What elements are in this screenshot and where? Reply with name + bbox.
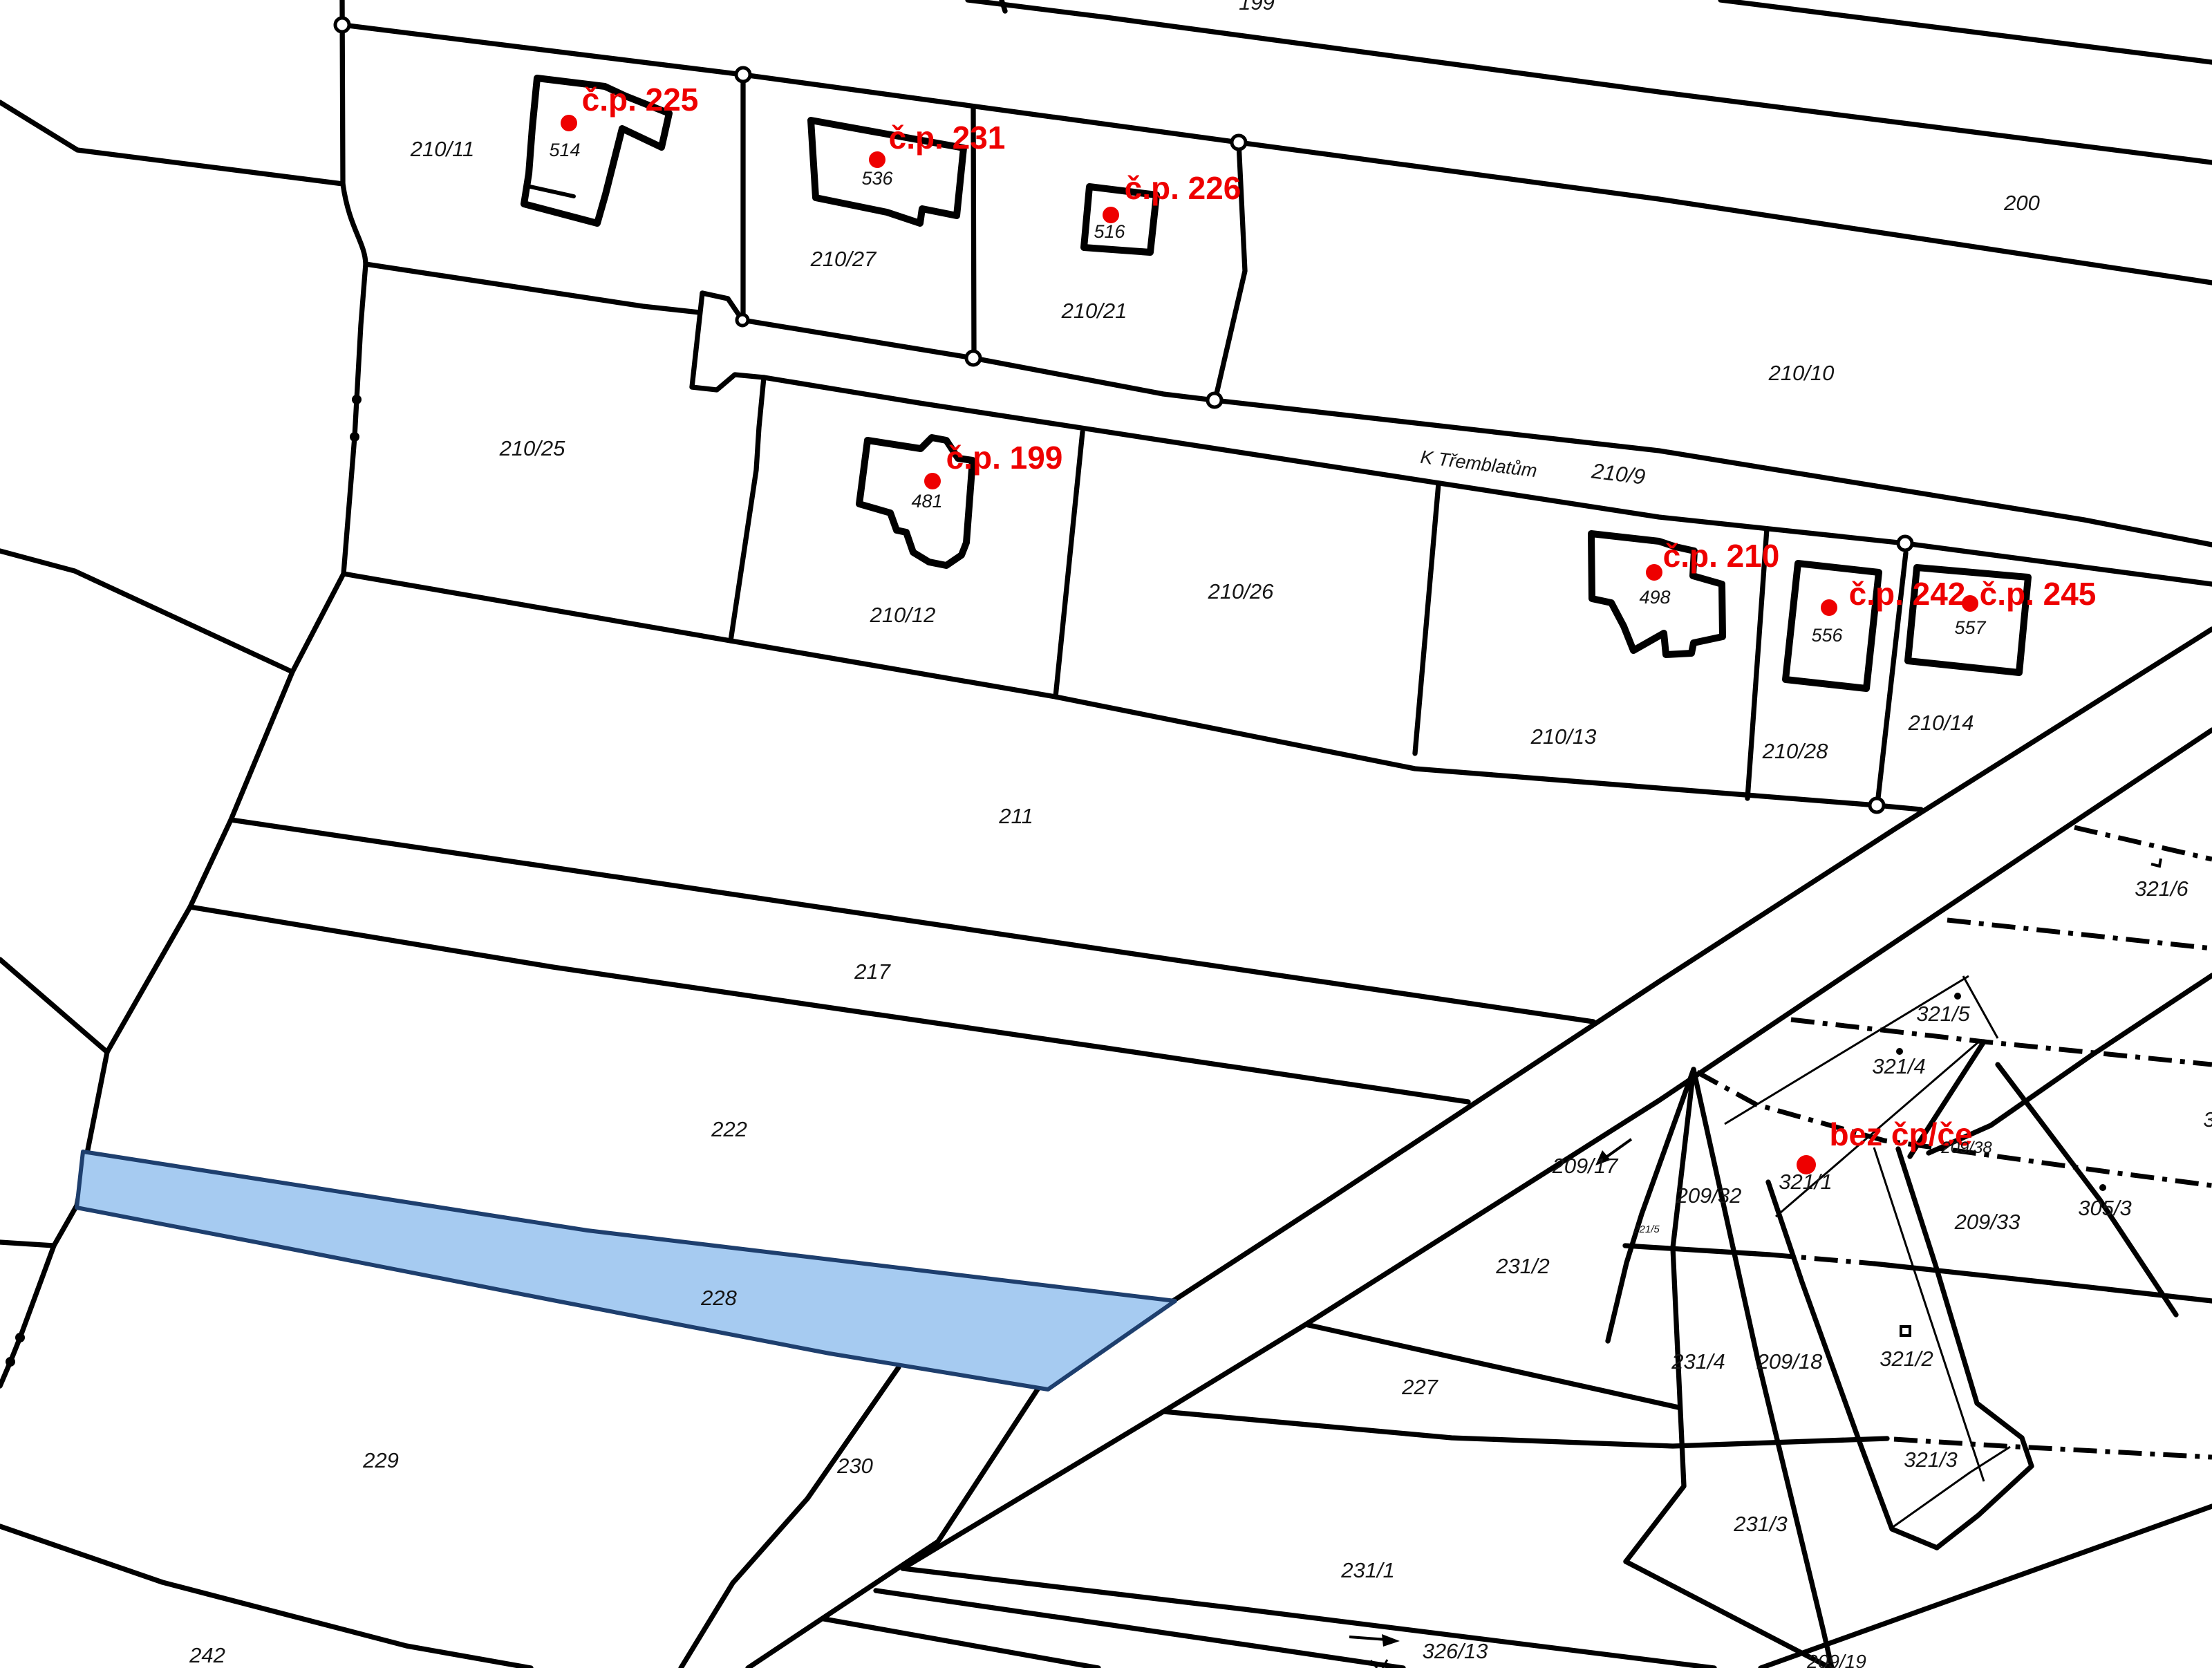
svg-text:514: 514 bbox=[549, 140, 580, 160]
svg-text:556: 556 bbox=[1811, 625, 1843, 646]
svg-text:229: 229 bbox=[362, 1448, 399, 1472]
svg-text:321/6: 321/6 bbox=[2135, 877, 2188, 901]
svg-text:230: 230 bbox=[836, 1454, 873, 1478]
svg-text:209/18: 209/18 bbox=[1756, 1349, 1824, 1374]
svg-text:200: 200 bbox=[2003, 191, 2040, 215]
svg-text:231/1: 231/1 bbox=[1340, 1558, 1395, 1582]
svg-text:242: 242 bbox=[189, 1643, 225, 1667]
svg-text:209/19: 209/19 bbox=[1806, 1651, 1866, 1668]
svg-text:210/26: 210/26 bbox=[1208, 579, 1275, 603]
svg-text:321/1: 321/1 bbox=[1779, 1170, 1833, 1194]
svg-text:3: 3 bbox=[2203, 1107, 2212, 1132]
svg-text:209/17: 209/17 bbox=[1552, 1154, 1620, 1178]
svg-text:210/27: 210/27 bbox=[810, 247, 878, 271]
svg-text:210/25: 210/25 bbox=[499, 436, 566, 460]
svg-text:č.p. 210: č.p. 210 bbox=[1663, 538, 1780, 574]
svg-text:321/4: 321/4 bbox=[1872, 1054, 1926, 1078]
svg-text:211: 211 bbox=[998, 804, 1033, 828]
svg-text:321/5: 321/5 bbox=[1916, 1002, 1970, 1026]
svg-text:305/3: 305/3 bbox=[2078, 1196, 2132, 1220]
svg-text:209/33: 209/33 bbox=[1954, 1210, 2021, 1234]
svg-text:209/32: 209/32 bbox=[1676, 1183, 1742, 1208]
svg-text:221/5: 221/5 bbox=[1633, 1224, 1660, 1235]
svg-text:210/13: 210/13 bbox=[1530, 724, 1597, 749]
svg-text:321/3: 321/3 bbox=[1904, 1447, 1958, 1472]
svg-text:210/28: 210/28 bbox=[1762, 739, 1829, 763]
svg-text:199: 199 bbox=[1239, 0, 1275, 15]
svg-text:326/13: 326/13 bbox=[1423, 1639, 1488, 1663]
svg-text:228: 228 bbox=[700, 1286, 737, 1310]
svg-text:210/12: 210/12 bbox=[870, 603, 936, 627]
svg-text:498: 498 bbox=[1639, 587, 1670, 608]
svg-text:210/21: 210/21 bbox=[1061, 299, 1127, 323]
svg-text:č.p. 226: č.p. 226 bbox=[1125, 170, 1241, 206]
svg-text:557: 557 bbox=[1954, 617, 1986, 638]
svg-text:210/14: 210/14 bbox=[1908, 711, 1974, 735]
svg-text:č.p. 242: č.p. 242 bbox=[1849, 576, 1966, 612]
svg-text:č.p. 231: č.p. 231 bbox=[889, 120, 1006, 156]
svg-text:231/3: 231/3 bbox=[1733, 1512, 1788, 1536]
svg-text:321/2: 321/2 bbox=[1880, 1347, 1933, 1371]
svg-text:516: 516 bbox=[1094, 221, 1125, 242]
svg-text:231/2: 231/2 bbox=[1495, 1254, 1550, 1278]
svg-text:481: 481 bbox=[911, 491, 942, 512]
svg-text:217: 217 bbox=[854, 959, 891, 984]
svg-text:536: 536 bbox=[861, 168, 893, 189]
svg-text:210/10: 210/10 bbox=[1768, 361, 1835, 385]
svg-text:č.p. 199: č.p. 199 bbox=[946, 440, 1063, 476]
svg-text:231/4: 231/4 bbox=[1671, 1349, 1725, 1374]
svg-text:209/38: 209/38 bbox=[1940, 1138, 1992, 1157]
svg-text:č.p. 245: č.p. 245 bbox=[1980, 576, 2097, 612]
svg-text:č.p. 225: č.p. 225 bbox=[582, 82, 699, 118]
svg-text:222: 222 bbox=[711, 1117, 747, 1141]
svg-text:210/11: 210/11 bbox=[410, 137, 475, 161]
svg-text:227: 227 bbox=[1401, 1375, 1438, 1399]
